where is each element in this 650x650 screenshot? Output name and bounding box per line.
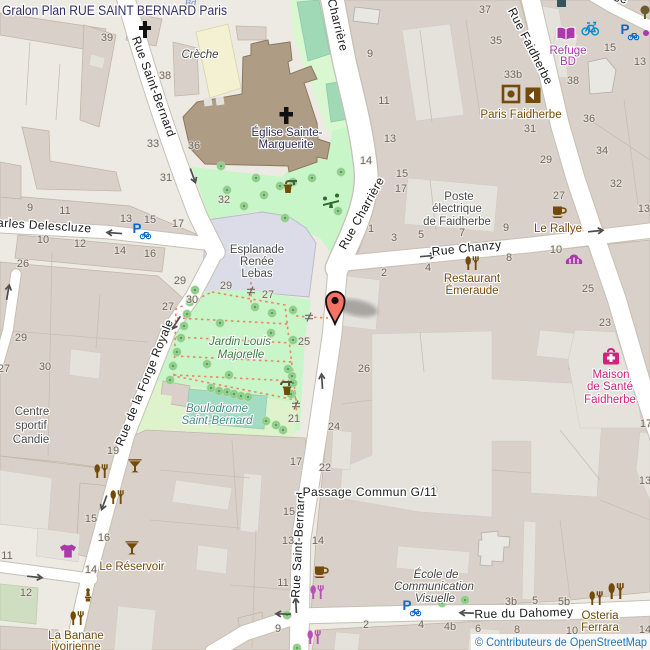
svg-text:16: 16: [98, 532, 110, 544]
svg-text:19: 19: [107, 445, 119, 457]
svg-text:11: 11: [1, 550, 12, 562]
svg-text:ivoirienne: ivoirienne: [51, 641, 100, 650]
svg-text:13: 13: [384, 133, 396, 145]
svg-text:Maison: Maison: [592, 369, 629, 381]
svg-text:17: 17: [172, 218, 184, 230]
svg-text:38: 38: [159, 70, 171, 82]
svg-text:8: 8: [506, 252, 512, 264]
svg-text:10: 10: [37, 234, 49, 246]
svg-text:Communication: Communication: [394, 581, 474, 593]
svg-text:Marguerite: Marguerite: [259, 139, 314, 151]
svg-text:15: 15: [85, 513, 97, 525]
svg-text:Église Sainte-: Église Sainte-: [252, 126, 323, 139]
svg-text:25: 25: [582, 283, 594, 295]
svg-text:39: 39: [101, 32, 113, 44]
svg-text:27: 27: [162, 301, 174, 313]
svg-text:Restaurant: Restaurant: [444, 273, 501, 285]
svg-text:24: 24: [328, 421, 340, 433]
svg-text:11: 11: [378, 95, 389, 107]
svg-text:Centre: Centre: [15, 406, 50, 418]
svg-text:7: 7: [459, 227, 465, 239]
svg-text:38: 38: [567, 75, 579, 87]
svg-text:BD: BD: [560, 56, 576, 68]
svg-text:12: 12: [20, 587, 32, 599]
svg-text:Jardin Louis: Jardin Louis: [208, 336, 271, 348]
svg-text:27: 27: [553, 190, 565, 202]
svg-text:29: 29: [220, 280, 232, 292]
svg-text:Visuelle: Visuelle: [415, 593, 455, 605]
svg-text:14: 14: [360, 155, 372, 167]
svg-text:Le Rallye: Le Rallye: [534, 223, 582, 235]
svg-text:11: 11: [277, 577, 288, 589]
svg-text:de Faidherbe: de Faidherbe: [423, 216, 491, 228]
svg-text:5b: 5b: [558, 596, 570, 608]
svg-text:Gralon Plan RUE SAINT BERNARD: Gralon Plan RUE SAINT BERNARD Paris: [2, 2, 227, 18]
svg-text:26: 26: [17, 258, 29, 270]
svg-text:Paris Faidherbe: Paris Faidherbe: [480, 109, 561, 121]
svg-text:5: 5: [532, 595, 538, 607]
svg-text:Candie: Candie: [13, 434, 49, 446]
svg-text:6: 6: [475, 623, 481, 635]
svg-text:Lebas: Lebas: [241, 268, 273, 280]
svg-text:Passage Commun G/11: Passage Commun G/11: [303, 485, 438, 499]
svg-text:22: 22: [319, 462, 331, 474]
svg-text:École de: École de: [414, 568, 459, 581]
svg-text:36: 36: [188, 140, 200, 152]
svg-text:14: 14: [312, 535, 324, 547]
svg-text:Renée: Renée: [240, 256, 274, 268]
svg-text:26: 26: [358, 363, 370, 375]
svg-text:17: 17: [640, 418, 650, 430]
svg-text:31: 31: [160, 172, 172, 184]
svg-text:25: 25: [298, 336, 310, 348]
svg-text:30: 30: [186, 294, 198, 306]
svg-text:33b: 33b: [504, 69, 522, 81]
svg-text:© Contributeurs de OpenStreetM: © Contributeurs de OpenStreetMap: [475, 635, 647, 649]
svg-text:34: 34: [596, 145, 608, 157]
svg-text:32: 32: [610, 178, 622, 190]
svg-text:13: 13: [120, 213, 132, 225]
svg-text:33: 33: [147, 138, 159, 150]
svg-text:Ferrara: Ferrara: [581, 622, 619, 634]
svg-text:9: 9: [27, 202, 33, 214]
svg-text:Crèche: Crèche: [181, 49, 218, 61]
svg-text:Poste: Poste: [444, 191, 473, 203]
svg-text:17: 17: [395, 183, 407, 195]
svg-text:13: 13: [638, 203, 650, 215]
svg-text:3b: 3b: [505, 596, 517, 608]
svg-text:15: 15: [396, 168, 408, 180]
svg-text:1: 1: [368, 223, 374, 235]
svg-text:15: 15: [144, 214, 156, 226]
svg-text:3: 3: [391, 232, 397, 244]
svg-text:12: 12: [74, 238, 86, 250]
svg-text:36: 36: [583, 113, 595, 125]
svg-text:10: 10: [550, 244, 562, 256]
svg-text:31: 31: [524, 123, 536, 135]
svg-text:9: 9: [503, 222, 509, 234]
svg-text:29: 29: [174, 275, 186, 287]
svg-text:15: 15: [283, 506, 295, 518]
svg-text:électrique: électrique: [432, 203, 482, 215]
svg-text:17: 17: [290, 456, 302, 468]
svg-text:11: 11: [59, 205, 70, 217]
svg-text:Faidherbe: Faidherbe: [584, 394, 636, 406]
svg-text:14: 14: [85, 564, 97, 576]
svg-text:15: 15: [604, 42, 616, 54]
svg-text:4: 4: [418, 619, 424, 631]
svg-text:Saint-Bernard: Saint-Bernard: [182, 415, 254, 427]
svg-text:2: 2: [381, 267, 387, 279]
svg-text:27: 27: [262, 289, 274, 301]
svg-text:37: 37: [479, 4, 491, 16]
svg-text:Le Réservoir: Le Réservoir: [99, 561, 164, 573]
svg-text:Émeraude: Émeraude: [445, 284, 498, 297]
svg-text:23: 23: [599, 317, 611, 329]
svg-text:16: 16: [144, 248, 156, 260]
svg-text:Majorelle: Majorelle: [218, 349, 265, 361]
svg-text:21: 21: [288, 413, 300, 425]
svg-text:30: 30: [39, 361, 51, 373]
svg-text:14: 14: [114, 245, 126, 257]
svg-text:Boulodrome: Boulodrome: [186, 403, 248, 415]
svg-text:13: 13: [282, 535, 294, 547]
svg-text:29: 29: [15, 332, 27, 344]
svg-text:13: 13: [639, 475, 650, 487]
svg-text:de Santé: de Santé: [587, 381, 633, 393]
svg-text:5: 5: [418, 229, 424, 241]
svg-text:13: 13: [634, 56, 646, 68]
svg-text:Osteria: Osteria: [581, 610, 619, 622]
svg-text:4: 4: [425, 262, 431, 274]
svg-text:2: 2: [363, 619, 369, 631]
svg-text:9: 9: [367, 48, 373, 60]
svg-text:9: 9: [275, 623, 281, 635]
svg-text:29: 29: [540, 154, 552, 166]
svg-text:32: 32: [218, 194, 230, 206]
svg-text:35: 35: [490, 35, 502, 47]
svg-text:sportif: sportif: [15, 420, 47, 432]
svg-text:Esplanade: Esplanade: [230, 244, 284, 256]
svg-text:4b: 4b: [444, 621, 456, 633]
svg-text:27: 27: [0, 363, 10, 375]
